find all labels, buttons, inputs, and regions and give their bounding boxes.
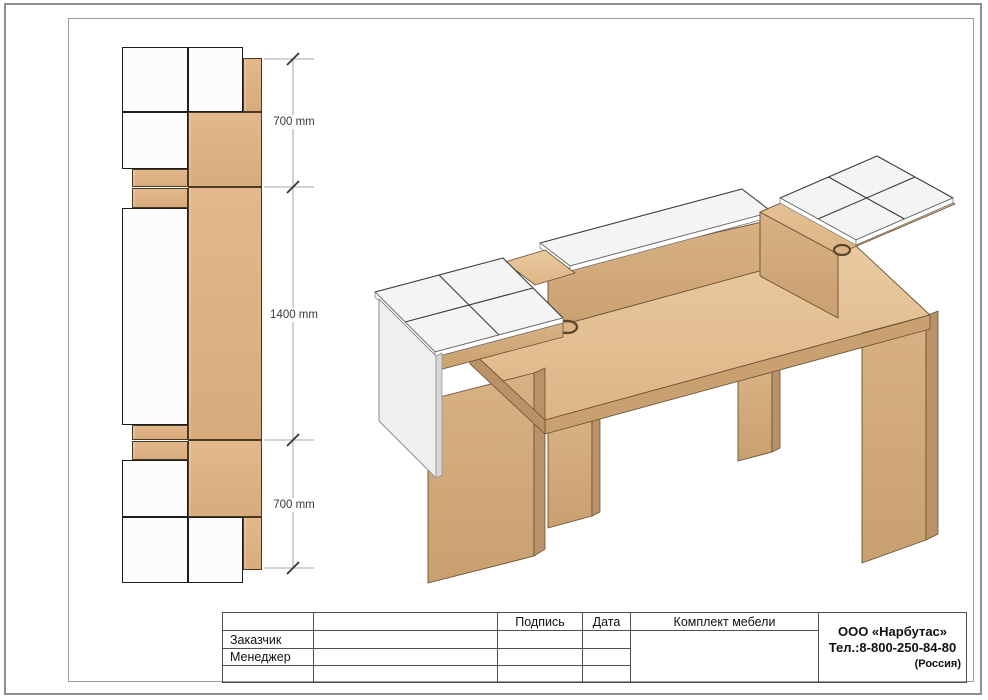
company-phone: Тел.:8-800-250-84-80 <box>824 640 961 656</box>
company-info: ООО «Нарбутас» Тел.:8-800-250-84-80 (Рос… <box>819 613 967 683</box>
company-name: ООО «Нарбутас» <box>824 624 961 640</box>
title-cell-empty <box>498 666 583 683</box>
manager-value <box>314 649 498 666</box>
title-cell-empty <box>223 666 314 683</box>
title-block: Подпись Дата Комплект мебели ООО «Нарбут… <box>222 612 967 683</box>
iso-and-dimensions-canvas <box>0 0 988 700</box>
dimension-label-bottom: 700 mm <box>263 498 325 512</box>
title-cell-empty <box>583 666 631 683</box>
dimension-label-top: 700 mm <box>263 115 325 129</box>
title-cell-empty <box>314 666 498 683</box>
cable-grommet <box>834 245 850 255</box>
drawing-sheet: 700 mm 1400 mm 700 mm Подпись Дата Компл… <box>0 0 988 700</box>
customer-signature <box>498 631 583 649</box>
iso-desk <box>375 156 955 583</box>
date-header: Дата <box>583 613 631 631</box>
company-country: (Россия) <box>824 656 961 672</box>
title-cell-empty <box>314 613 498 631</box>
furniture-set-value <box>631 631 819 683</box>
customer-label: Заказчик <box>223 631 314 649</box>
manager-signature <box>498 649 583 666</box>
furniture-set-header: Комплект мебели <box>631 613 819 631</box>
manager-date <box>583 649 631 666</box>
dimension-label-middle: 1400 mm <box>263 308 325 322</box>
customer-value <box>314 631 498 649</box>
signature-header: Подпись <box>498 613 583 631</box>
customer-date <box>583 631 631 649</box>
title-cell-empty <box>223 613 314 631</box>
manager-label: Менеджер <box>223 649 314 666</box>
